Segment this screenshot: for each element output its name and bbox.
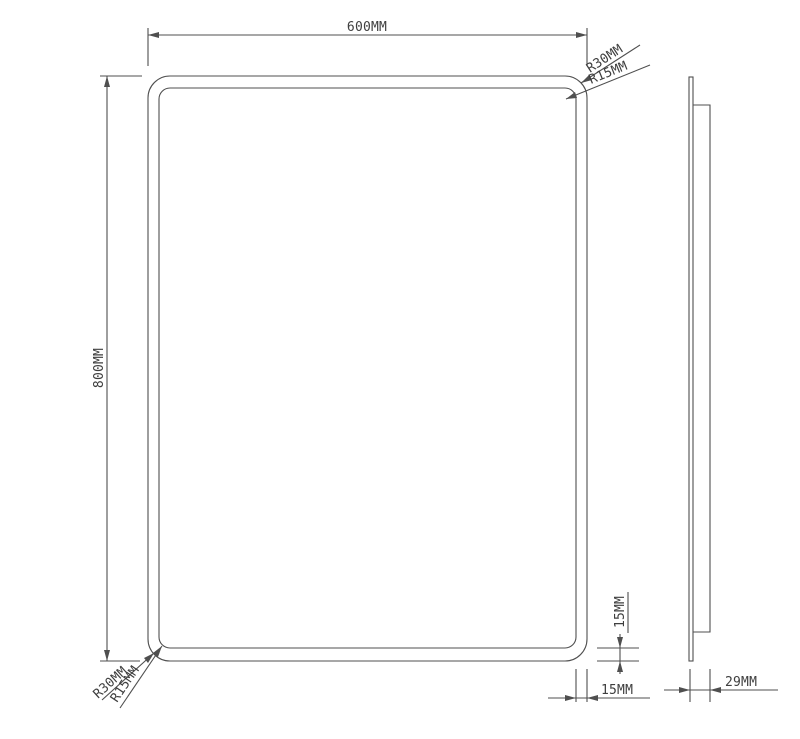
drawing-canvas: 600MM 800MM R30MM R15MM R30MM R15MM 15MM… bbox=[0, 0, 800, 739]
mirror-technical-drawing: 600MM 800MM R30MM R15MM R30MM R15MM 15MM… bbox=[0, 0, 800, 739]
frame-gap-vertical-label: 15MM bbox=[613, 596, 628, 628]
depth-dimension-label: 29MM bbox=[725, 675, 757, 690]
frame-gap-horizontal-label: 15MM bbox=[601, 683, 633, 698]
width-dimension-label: 600MM bbox=[347, 20, 387, 35]
drawing-background bbox=[0, 0, 800, 739]
height-dimension-label: 800MM bbox=[92, 348, 107, 388]
